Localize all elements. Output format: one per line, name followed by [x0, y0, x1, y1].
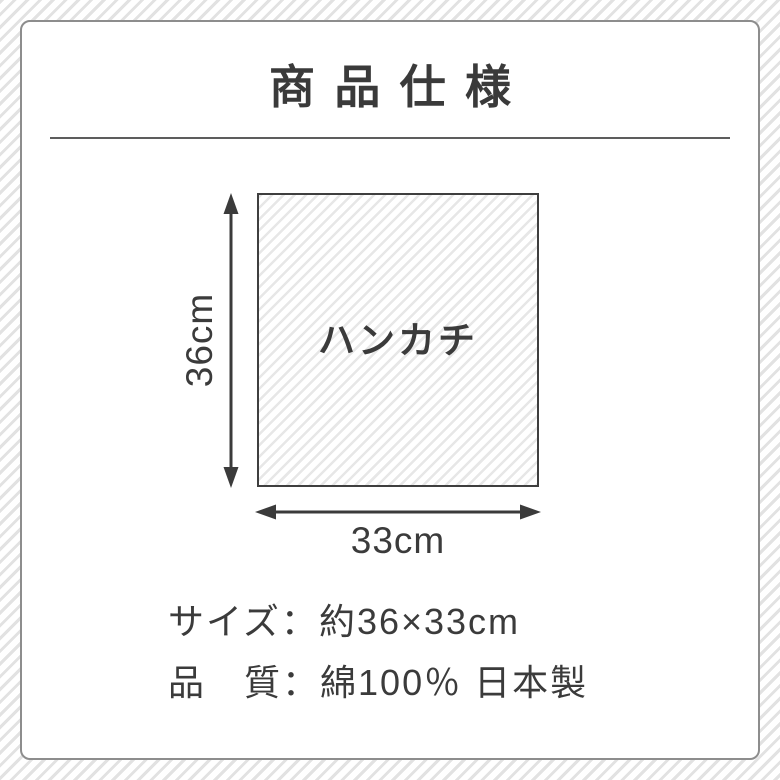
spec-row-size: サイズ：約36×33cm	[168, 588, 588, 649]
spec-value: 綿100％ 日本製	[320, 654, 588, 706]
height-label-box: 36cm	[178, 193, 222, 487]
spec-row-quality: 品 質：綿100％ 日本製	[168, 649, 588, 710]
page-title: 商品仕様	[22, 64, 758, 110]
height-dimension-arrow	[220, 193, 242, 488]
product-spec-page: 商品仕様 36cm ハンカチ 33cm サイズ：約36×33cm 品 質：綿10…	[0, 0, 780, 780]
spec-value: 約36×33cm	[319, 593, 520, 645]
width-label: 33cm	[257, 522, 539, 559]
arrowhead-left-icon	[255, 505, 276, 520]
title-divider	[50, 137, 730, 139]
item-label: ハンカチ	[318, 310, 478, 364]
spec-panel: 商品仕様 36cm ハンカチ 33cm サイズ：約36×33cm 品 質：綿10…	[20, 20, 760, 760]
spec-label: サイズ	[168, 593, 281, 645]
arrowhead-down-icon	[224, 467, 239, 488]
handkerchief-diagram: ハンカチ	[257, 193, 539, 487]
arrowhead-up-icon	[224, 193, 239, 214]
spec-label: 品 質	[168, 654, 282, 706]
spec-separator: ：	[282, 654, 320, 706]
height-label: 36cm	[179, 293, 221, 387]
spec-separator: ：	[281, 593, 319, 645]
spec-list: サイズ：約36×33cm 品 質：綿100％ 日本製	[168, 588, 588, 710]
arrowhead-right-icon	[520, 505, 541, 520]
